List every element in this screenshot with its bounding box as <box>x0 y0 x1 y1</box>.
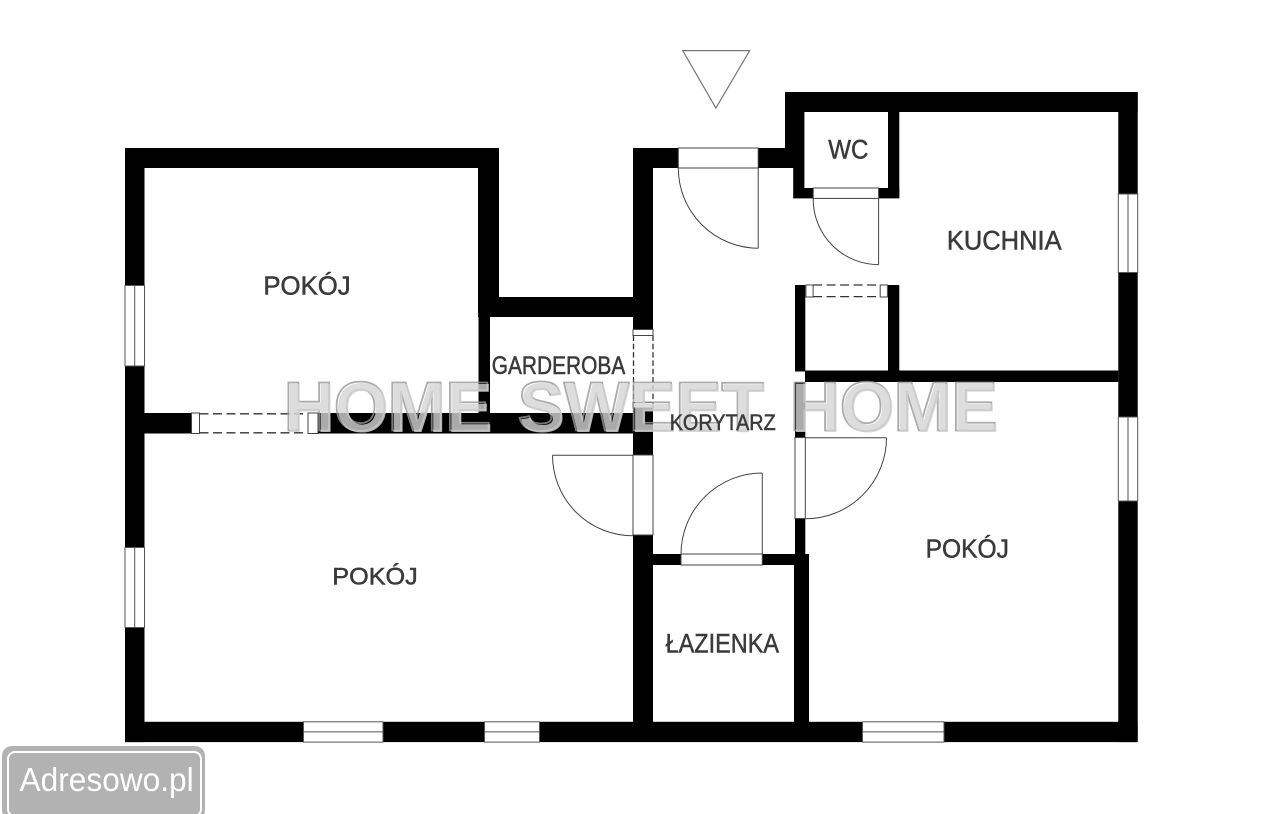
svg-text:ŁAZIENKA: ŁAZIENKA <box>666 629 780 659</box>
svg-text:KUCHNIA: KUCHNIA <box>947 225 1062 256</box>
svg-text:POKÓJ: POKÓJ <box>263 272 350 301</box>
svg-text:GARDEROBA: GARDEROBA <box>492 351 626 379</box>
svg-text:KORYTARZ: KORYTARZ <box>670 411 776 435</box>
svg-text:POKÓJ: POKÓJ <box>926 534 1009 564</box>
svg-text:HOME SWEET HOME: HOME SWEET HOME <box>285 369 999 447</box>
svg-text:POKÓJ: POKÓJ <box>332 562 418 591</box>
svg-text:WC: WC <box>828 135 868 164</box>
